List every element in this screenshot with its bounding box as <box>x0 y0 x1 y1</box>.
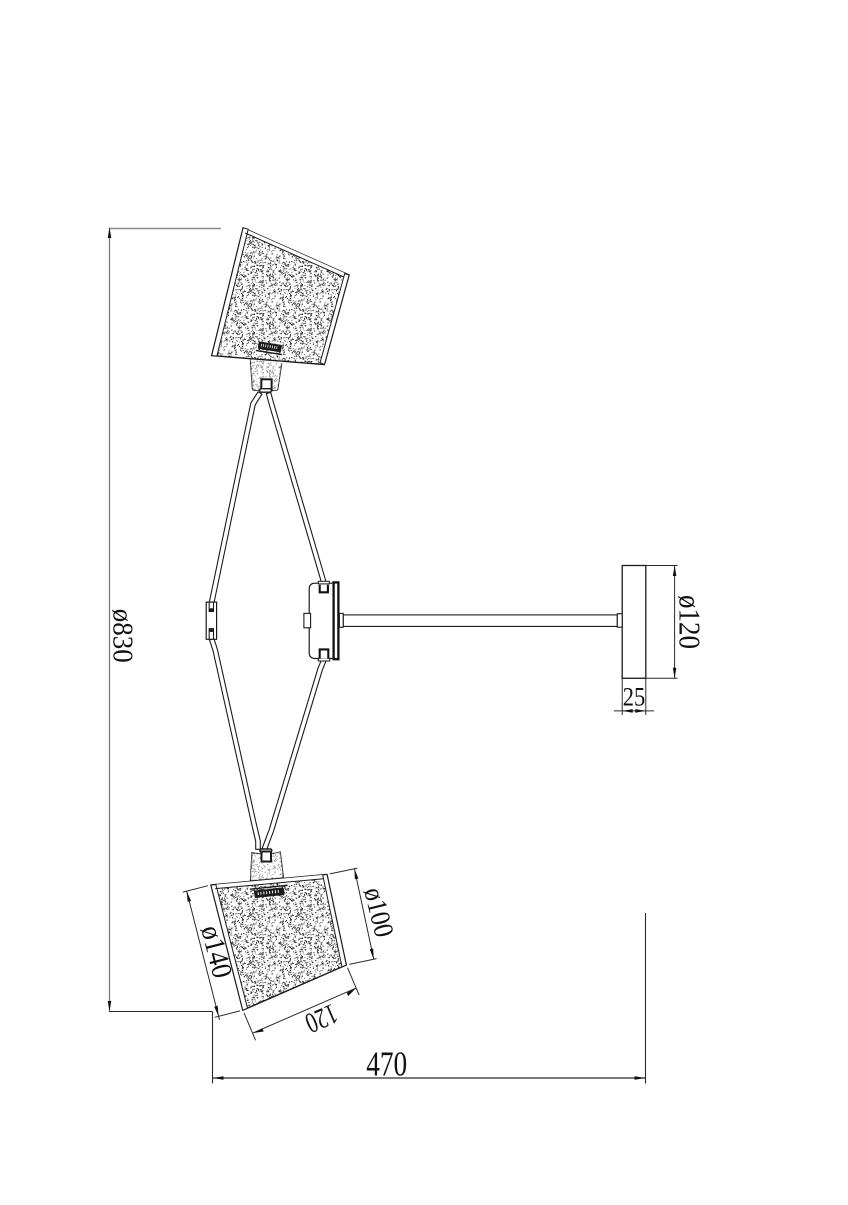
svg-text:ø830: ø830 <box>107 609 139 663</box>
svg-text:ø120: ø120 <box>673 595 708 649</box>
svg-text:25: 25 <box>623 683 646 712</box>
svg-text:470: 470 <box>366 1045 407 1084</box>
